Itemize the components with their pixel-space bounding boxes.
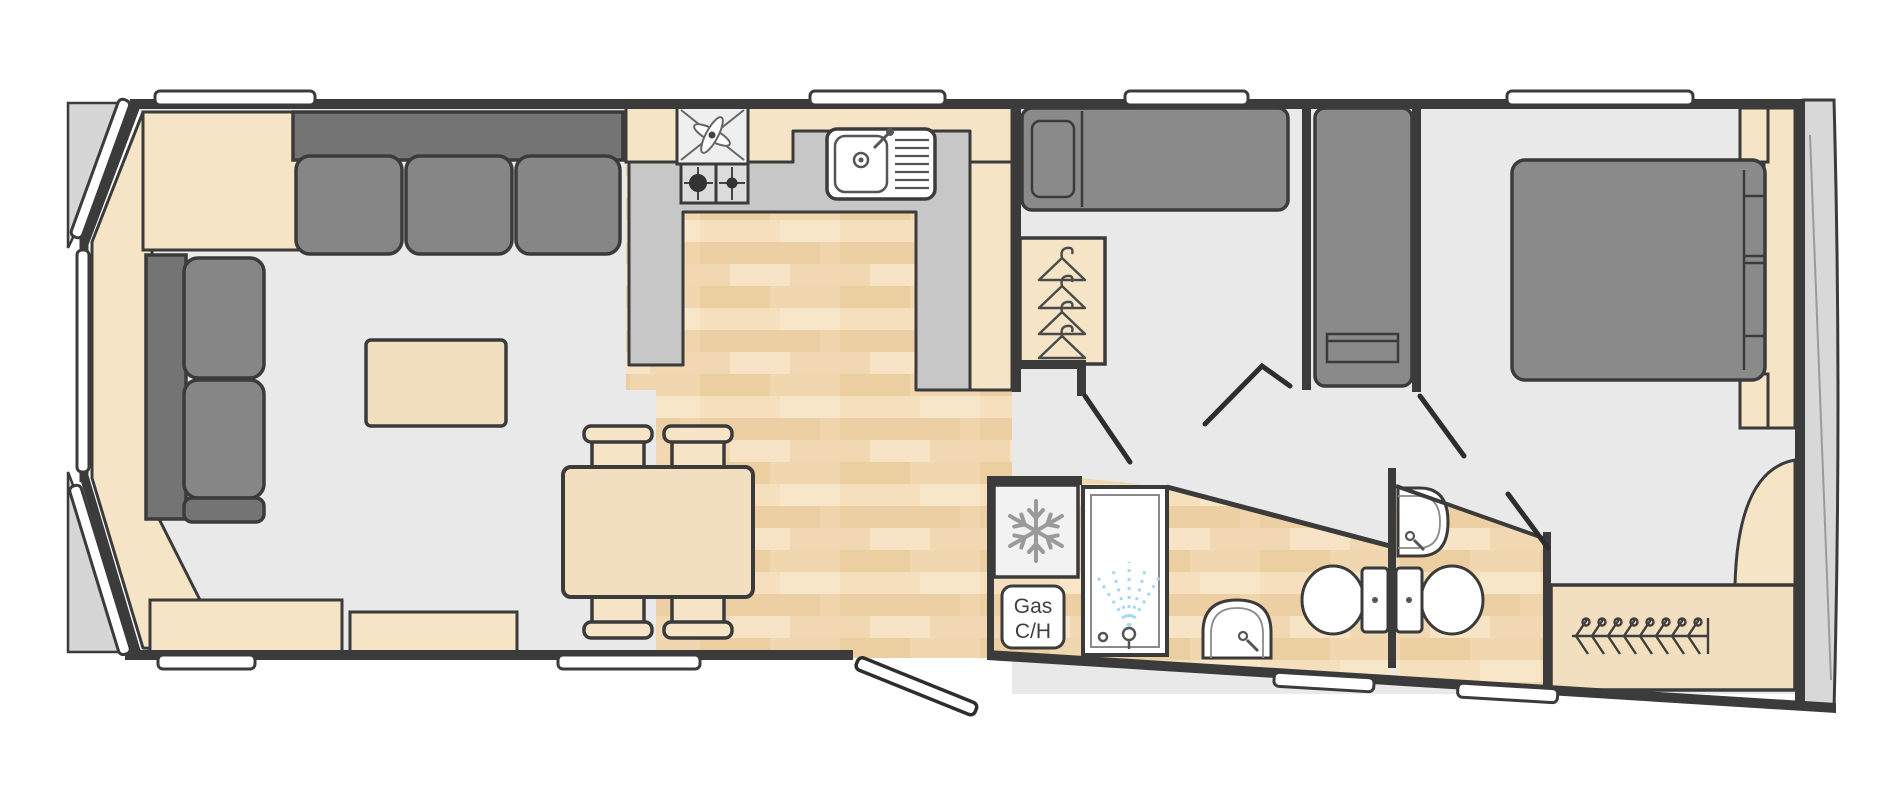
tv-cabinet [150, 600, 342, 652]
coffee-table [366, 340, 506, 426]
window-twin-top [1125, 91, 1248, 105]
gas-ch-label-line1: Gas [1014, 595, 1053, 618]
sofa-left-back [146, 255, 186, 519]
wall-twin1-twin2 [1302, 106, 1311, 390]
wall-ensuite-right [1543, 532, 1551, 687]
wall-twin2-master [1412, 106, 1421, 392]
window-master-top [1507, 91, 1693, 105]
sofa-cushion [184, 380, 264, 498]
window-lounge-bottom [158, 655, 255, 669]
sofa-cushion [184, 258, 264, 378]
entrance-door-leaf [855, 656, 979, 716]
gas-hob-icon [681, 164, 748, 203]
single-bed-1 [1022, 108, 1288, 210]
ensuite-toilet-icon [1396, 566, 1483, 634]
corner-shelf [143, 112, 300, 250]
sofa-top-back [293, 112, 623, 160]
bedside-shelf-top [1740, 108, 1768, 162]
wall-twin1-door-stub [1077, 360, 1086, 396]
dining-chair [664, 594, 732, 638]
bathroom-washbasin-icon [1203, 600, 1271, 658]
window-lounge-top [155, 91, 315, 105]
dining-table [563, 467, 753, 597]
dining-chair [664, 426, 732, 470]
bathroom-toilet-icon [1302, 566, 1388, 634]
sideboard-cabinet [350, 612, 517, 652]
bedside-shelf-bottom [1740, 374, 1768, 428]
wall-kitchen-twin1 [1012, 106, 1021, 392]
gas-central-heating-boiler: Gas C/H [1002, 586, 1064, 648]
ensuite-washbasin-icon [1398, 488, 1448, 556]
tall-cupboard [970, 162, 1012, 390]
wall-bath-ensuite-divider [1388, 468, 1396, 668]
sink-drainer-icon [827, 128, 935, 199]
window-dining-bottom [558, 655, 700, 669]
window-bay-left [77, 250, 89, 472]
wall-bathroom-top [987, 476, 1082, 485]
twin-bedroom-2 [1315, 108, 1412, 386]
floor-plan-svg: Gas C/H [0, 0, 1900, 800]
dining-chair [584, 426, 652, 470]
window-kitchen-top [810, 91, 945, 105]
wall-bathroom-left [987, 476, 994, 658]
sofa-cushion [406, 156, 512, 254]
double-bed [1512, 160, 1765, 380]
entrance-door [855, 656, 979, 716]
shower-cubicle [1083, 487, 1167, 655]
extractor-fan [677, 106, 748, 164]
dining-chair [584, 594, 652, 638]
floor-plan-stage: Gas C/H [0, 0, 1900, 800]
wall-twin1-bottom [1012, 360, 1086, 369]
wall-right [1795, 99, 1805, 707]
sofa-arm [184, 498, 264, 522]
sofa-left [146, 255, 264, 522]
sofa-cushion [296, 156, 402, 254]
sofa-top [293, 112, 623, 254]
drainer-lines [895, 140, 929, 188]
fridge-freezer [994, 485, 1078, 577]
sofa-cushion [516, 156, 620, 254]
gas-ch-label-line2: C/H [1015, 620, 1051, 643]
